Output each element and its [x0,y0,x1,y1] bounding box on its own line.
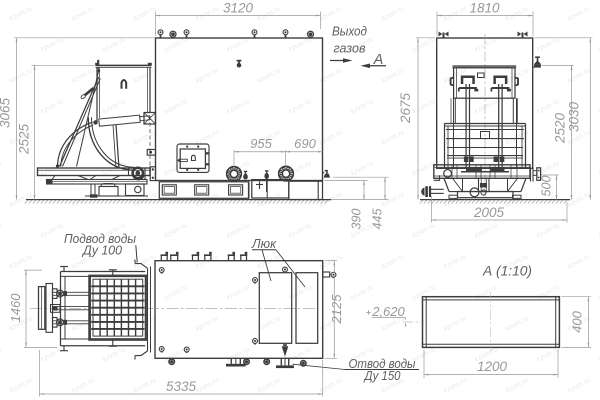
svg-text:445: 445 [371,209,385,230]
svg-text:1460: 1460 [8,293,23,323]
svg-text:Выход: Выход [332,24,367,39]
svg-text:газов: газов [334,41,366,56]
svg-text:2525: 2525 [17,123,32,155]
svg-text:400: 400 [570,310,585,332]
svg-text:1810: 1810 [469,1,500,16]
svg-text:2,620: 2,620 [371,304,405,319]
svg-text:2005: 2005 [473,205,505,220]
svg-text:390: 390 [350,209,364,230]
svg-text:Ду 150: Ду 150 [363,368,401,383]
svg-text:2520: 2520 [553,112,568,144]
svg-text:3120: 3120 [223,1,254,16]
svg-text:2125: 2125 [329,294,344,325]
svg-text:500: 500 [540,176,554,197]
svg-text:2675: 2675 [398,92,413,124]
svg-text:А (1:10): А (1:10) [482,263,532,279]
svg-text:3065: 3065 [0,97,13,128]
svg-text:955: 955 [250,136,272,151]
svg-text:Люк: Люк [251,236,277,251]
svg-text:3030: 3030 [567,101,582,132]
svg-text:5335: 5335 [166,379,197,394]
svg-text:690: 690 [294,136,316,151]
svg-text:Ду 100: Ду 100 [81,243,123,258]
svg-text:1200: 1200 [477,359,508,374]
